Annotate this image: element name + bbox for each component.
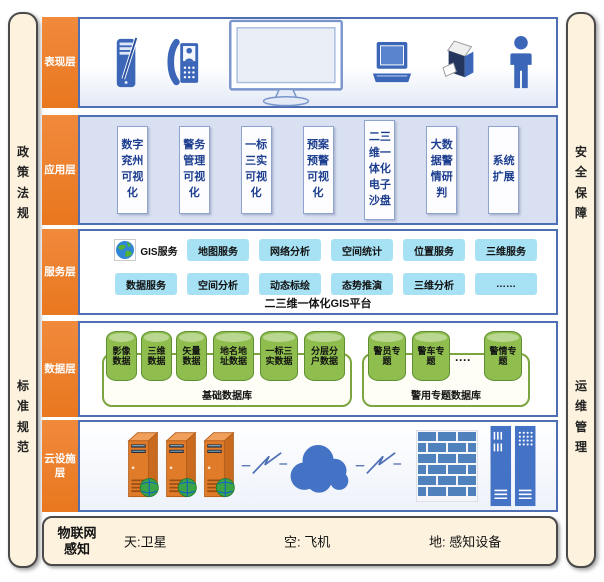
server-icon [125, 426, 161, 506]
iot-perception-bar: 物联网感知 天:卫星 空: 飞机 地: 感知设备 [42, 516, 558, 566]
data-layer-content: 基础数据库 警用专题数据库 影像数据 三维数据 矢量数据 地名地址数据 一标三实… [78, 321, 558, 417]
monitor-icon [228, 19, 344, 107]
person-icon [508, 35, 534, 91]
base-database-label: 基础数据库 [104, 387, 350, 402]
app-box-bigdata-analysis: 大数据警情研判 [426, 126, 457, 214]
service-tile-dynamic-plotting: 动态标绘 [259, 273, 321, 295]
app-box-one-standard: 一标三实可视化 [241, 126, 272, 214]
security-assurance-label: 安全保障 [574, 142, 588, 224]
app-box-system-expand: 系统扩展 [488, 126, 519, 214]
iot-perception-label: 物联网感知 [52, 525, 102, 556]
server-icon [163, 426, 199, 506]
app-box-digital-yanzhou: 数字兖州可视化 [117, 126, 148, 214]
service-tile-situation-deduction: 态势推演 [331, 273, 393, 295]
standard-spec-label: 标准规范 [16, 376, 30, 458]
police-database-label: 警用专题数据库 [364, 387, 528, 402]
cylinder-3d-data: 三维数据 [141, 331, 172, 381]
service-tile-3d-analysis: 三维分析 [403, 273, 465, 295]
cylinder-ellipsis: ···· [455, 353, 471, 367]
iot-item-sensing-device: 地: 感知设备 [429, 532, 501, 551]
right-sidebar: 安全保障 运维管理 [566, 12, 596, 568]
cloud-facility-layer-row: 云设施层 [42, 420, 558, 512]
left-sidebar: 政策法规 标准规范 [8, 12, 38, 568]
globe-icon [114, 239, 136, 261]
cylinder-address-data: 地名地址数据 [213, 331, 254, 381]
cylinder-household-data: 分层分户数据 [304, 331, 345, 381]
server-rack-icon [488, 424, 538, 508]
data-layer-row: 数据层 基础数据库 警用专题数据库 影像数据 三维数据 矢量数据 地名地址数据 … [42, 321, 558, 417]
presentation-layer-label: 表现层 [42, 17, 78, 108]
service-row-2: 数据服务 空间分析 动态标绘 态势推演 三维分析 …… [80, 273, 556, 295]
app-box-plan-warning: 预案预警可视化 [303, 126, 334, 214]
cylinder-police-incident-theme: 警情专题 [484, 331, 522, 381]
cloud-icon [286, 436, 352, 498]
cylinder-imagery-data: 影像数据 [106, 331, 137, 381]
gis-service-item: GIS服务 [110, 239, 182, 261]
videophone-icon [167, 36, 201, 90]
laptop-icon [370, 39, 414, 87]
gis-platform-title: 二三维一体化GIS平台 [80, 295, 556, 311]
service-tile-3d-service: 三维服务 [475, 239, 537, 261]
firewall-icon [416, 430, 478, 502]
presentation-layer-content [78, 17, 558, 108]
service-layer-content: GIS服务 地图服务 网络分析 空间统计 位置服务 三维服务 数据服务 空间分析… [78, 229, 558, 315]
service-tile-data: 数据服务 [115, 273, 177, 295]
service-tile-location: 位置服务 [403, 239, 465, 261]
service-tile-map: 地图服务 [187, 239, 249, 261]
app-box-police-management: 警务管理可视化 [179, 126, 210, 214]
iot-item-aircraft: 空: 飞机 [284, 532, 330, 551]
service-layer-row: 服务层 GIS服务 地图服务 网络分析 空间统计 位置服务 三维服 [42, 229, 558, 315]
application-layer-content: 数字兖州可视化 警务管理可视化 一标三实可视化 预案预警可视化 二三维一体化电子… [78, 115, 558, 225]
cloud-facility-layer-label: 云设施层 [42, 420, 78, 512]
data-layer-label: 数据层 [42, 321, 78, 417]
application-layer-row: 应用层 数字兖州可视化 警务管理可视化 一标三实可视化 预案预警可视化 二三维一… [42, 115, 558, 225]
service-tile-more: …… [475, 273, 537, 295]
pda-icon [114, 34, 140, 92]
printer-icon [441, 37, 481, 89]
iot-item-satellite: 天:卫星 [124, 532, 167, 551]
app-box-2d3d-sandbox: 二三维一体化电子沙盘 [364, 120, 395, 220]
lightning-icon [240, 446, 288, 482]
cylinder-police-car-theme: 警车专题 [412, 331, 450, 381]
presentation-layer-row: 表现层 [42, 17, 558, 108]
service-layer-label: 服务层 [42, 229, 78, 315]
application-layer-label: 应用层 [42, 115, 78, 225]
service-tile-network-analysis: 网络分析 [259, 239, 321, 261]
cloud-facility-layer-content [78, 420, 558, 512]
architecture-diagram: 政策法规 标准规范 安全保障 运维管理 表现层 [0, 0, 604, 582]
server-icon [201, 426, 237, 506]
service-tile-spatial-analysis: 空间分析 [187, 273, 249, 295]
cylinder-police-officer-theme: 警员专题 [368, 331, 406, 381]
lightning-icon [354, 446, 402, 482]
gis-service-label: GIS服务 [140, 243, 177, 258]
cylinder-one-standard-data: 一标三实数据 [260, 331, 298, 381]
ops-management-label: 运维管理 [574, 376, 588, 458]
cylinder-vector-data: 矢量数据 [176, 331, 207, 381]
service-row-1: GIS服务 地图服务 网络分析 空间统计 位置服务 三维服务 [80, 239, 556, 261]
service-tile-spatial-statistics: 空间统计 [331, 239, 393, 261]
policy-regulation-label: 政策法规 [16, 142, 30, 224]
